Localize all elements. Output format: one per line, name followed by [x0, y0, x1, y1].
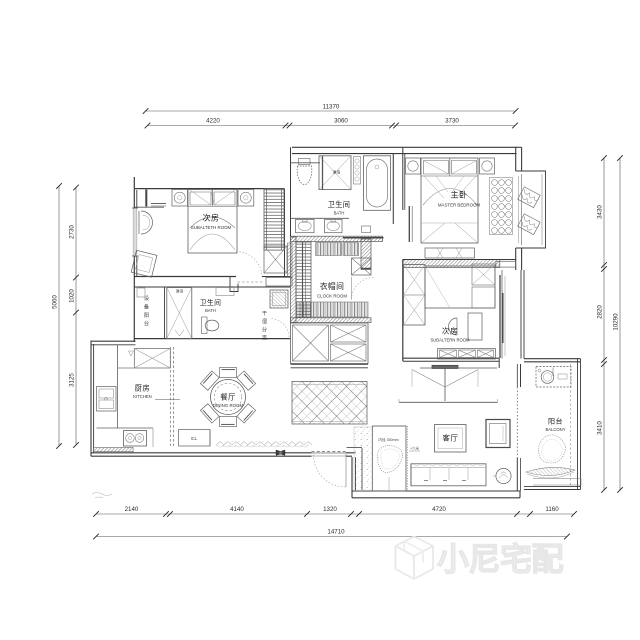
svg-text:11370: 11370	[323, 104, 340, 111]
svg-text:SUBALTERN ROOM: SUBALTERN ROOM	[430, 338, 470, 343]
svg-text:衣帽间: 衣帽间	[320, 281, 345, 291]
svg-text:3430: 3430	[597, 205, 604, 219]
svg-text:台: 台	[144, 319, 149, 327]
svg-text:1020: 1020	[69, 289, 76, 303]
svg-text:3060: 3060	[334, 118, 348, 125]
svg-text:淋浴: 淋浴	[333, 170, 341, 175]
svg-text:次房: 次房	[442, 326, 458, 336]
svg-text:5060: 5060	[52, 295, 59, 309]
svg-text:DINING ROOM: DINING ROOM	[213, 403, 244, 408]
svg-text:内径 350mm: 内径 350mm	[378, 437, 398, 442]
svg-text:BALCONY: BALCONY	[545, 427, 565, 432]
svg-text:淋浴: 淋浴	[176, 289, 184, 294]
svg-text:卫生间: 卫生间	[200, 298, 222, 307]
svg-text:SUBALTETH ROOM: SUBALTETH ROOM	[191, 225, 232, 230]
svg-text:3125: 3125	[69, 373, 76, 387]
svg-text:MASTER BEDROOM: MASTER BEDROOM	[438, 203, 481, 208]
svg-text:+六米: +六米	[410, 446, 420, 451]
svg-text:设: 设	[144, 294, 149, 302]
svg-text:餐厅: 餐厅	[220, 393, 236, 402]
svg-text:阳: 阳	[144, 311, 149, 319]
svg-text:客厅: 客厅	[442, 433, 458, 443]
svg-text:离: 离	[262, 334, 267, 342]
svg-text:ICL: ICL	[191, 436, 198, 441]
svg-text:湿: 湿	[262, 317, 267, 325]
svg-text:KITCHEN: KITCHEN	[133, 394, 151, 399]
svg-text:BATH: BATH	[334, 211, 345, 216]
svg-text:1320: 1320	[323, 506, 337, 513]
svg-text:2140: 2140	[125, 506, 139, 513]
svg-text:BATH: BATH	[205, 308, 216, 313]
svg-text:3730: 3730	[445, 118, 459, 125]
svg-text:次房: 次房	[203, 213, 220, 223]
svg-text:厨房: 厨房	[135, 384, 150, 393]
svg-text:14710: 14710	[327, 529, 345, 536]
svg-text:CLOCK ROOM: CLOCK ROOM	[317, 294, 347, 299]
svg-text:10290: 10290	[613, 313, 620, 331]
svg-text:2820: 2820	[597, 305, 604, 319]
svg-text:2730: 2730	[69, 225, 76, 239]
svg-text:备: 备	[144, 302, 150, 310]
svg-text:分: 分	[262, 325, 267, 333]
svg-text:阳台: 阳台	[548, 417, 563, 426]
svg-text:卫生间: 卫生间	[328, 200, 351, 209]
svg-text:4140: 4140	[230, 506, 244, 513]
svg-text:主卧: 主卧	[451, 190, 468, 200]
svg-text:4220: 4220	[206, 118, 220, 125]
svg-text:3410: 3410	[597, 421, 604, 435]
svg-text:1160: 1160	[545, 506, 559, 513]
svg-text:小尼宅配: 小尼宅配	[437, 541, 564, 577]
svg-text:4720: 4720	[432, 506, 446, 513]
svg-text:干: 干	[262, 310, 267, 317]
